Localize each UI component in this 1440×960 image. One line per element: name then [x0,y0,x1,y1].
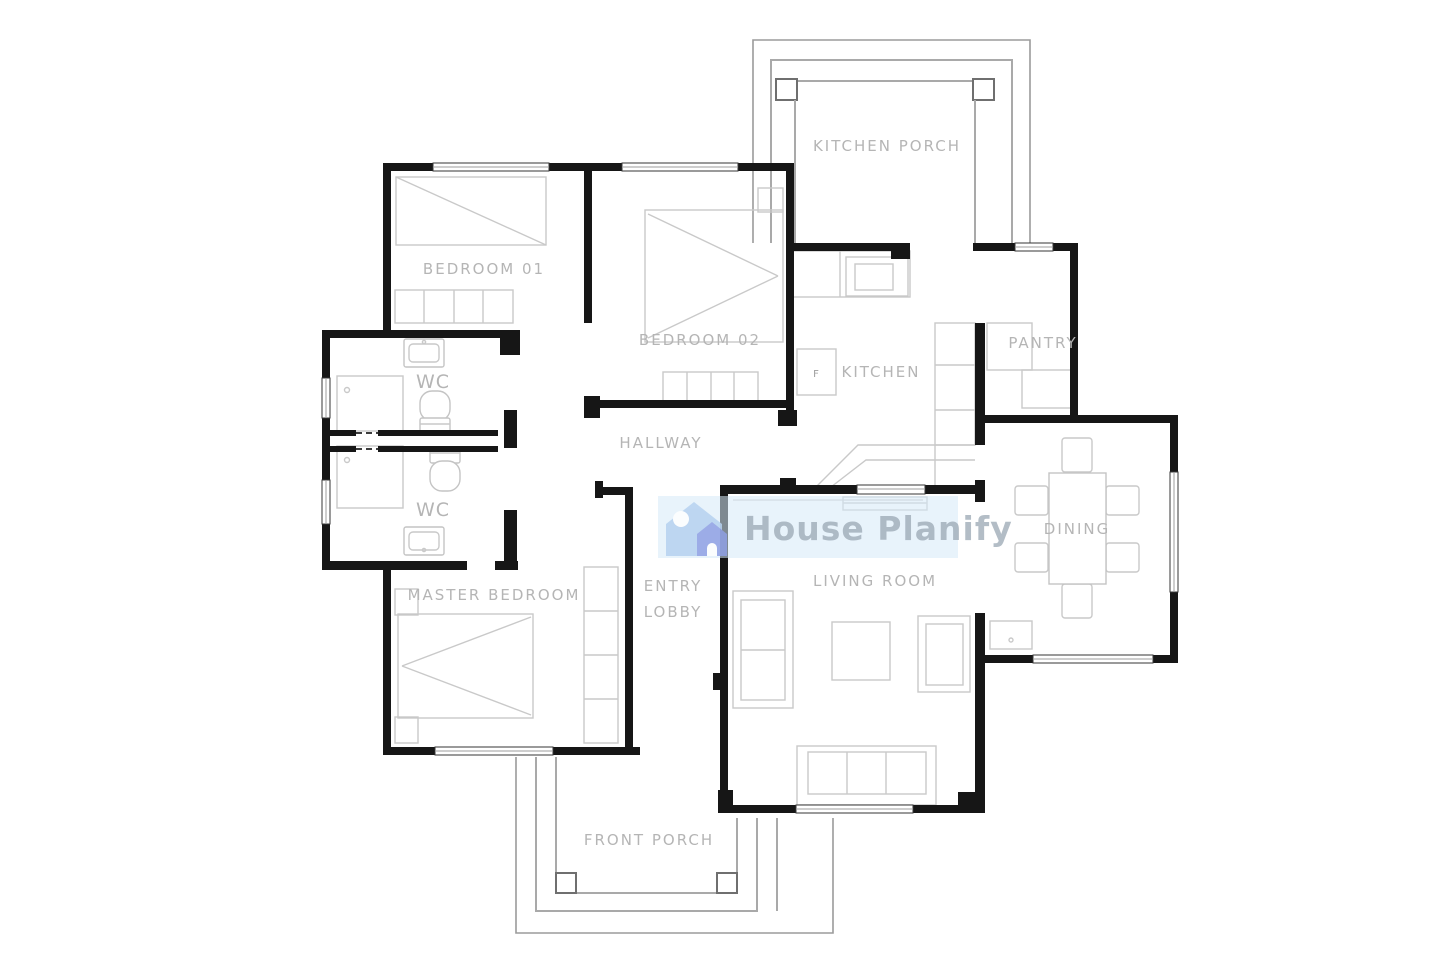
label-hallway: HALLWAY [619,434,702,452]
sofa-icon [797,746,936,805]
side-table-icon [395,717,418,743]
label-bedroom-01: BEDROOM 01 [423,260,545,278]
label-lobby: LOBBY [644,603,703,621]
bed-icon [398,614,533,718]
floor-plan-page: F [0,0,1440,960]
wardrobe-icon [395,290,513,323]
label-pantry: PANTRY [1008,334,1077,352]
pantry-shelf-icon [1022,370,1076,408]
fridge-label: F [813,369,819,380]
watermark-brand-text: House Planify [744,509,1013,548]
toilet-icon [430,447,460,491]
bed-icon [396,177,546,245]
watermark: House Planify [658,496,1013,558]
sink-icon [404,339,444,367]
fridge-icon: F [797,349,836,395]
label-master-bedroom: MASTER BEDROOM [408,586,581,604]
toilet-icon [420,391,450,434]
armchair-icon [918,616,970,692]
label-bedroom-02: BEDROOM 02 [639,331,761,349]
sink-icon [404,527,444,555]
kitchen-counter-icon [935,323,975,445]
shower-icon [337,446,403,508]
sofa-icon [733,591,793,708]
label-kitchen-porch: KITCHEN PORCH [813,137,961,155]
porch-column [556,873,576,893]
chair-icon [1106,543,1139,572]
chair-icon [1062,584,1092,618]
wardrobe-icon [584,567,618,743]
floor-plan-drawing: F [0,0,1440,960]
label-wc-lower: WC [416,499,450,521]
chair-icon [1062,438,1092,472]
label-kitchen: KITCHEN [842,363,921,381]
chair-icon [1015,543,1048,572]
porch-column [973,79,994,100]
label-entry: ENTRY [644,577,703,595]
chair-icon [1106,486,1139,515]
porch-column [717,873,737,893]
kitchen-counter-icon [816,445,975,487]
label-front-porch: FRONT PORCH [584,831,714,849]
label-living-room: LIVING ROOM [813,572,937,590]
label-wc-upper: WC [416,371,450,393]
chair-icon [1015,486,1048,515]
porch-column [776,79,797,100]
bed-icon [645,210,783,342]
cabinet-icon [990,621,1032,649]
coffee-table-icon [832,622,890,680]
label-dining: DINING [1044,520,1110,538]
shower-icon [337,376,403,431]
